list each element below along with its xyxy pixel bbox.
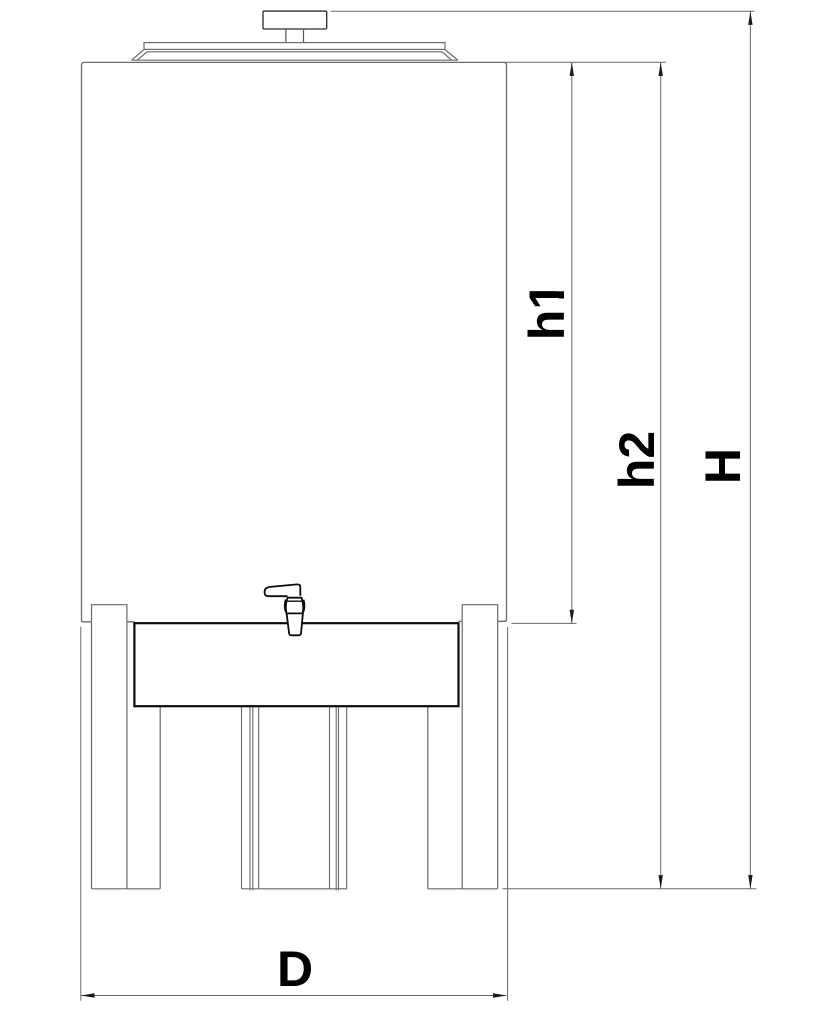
svg-text:H: H (695, 448, 751, 484)
svg-text:D: D (277, 941, 313, 997)
svg-text:h2: h2 (609, 431, 665, 489)
